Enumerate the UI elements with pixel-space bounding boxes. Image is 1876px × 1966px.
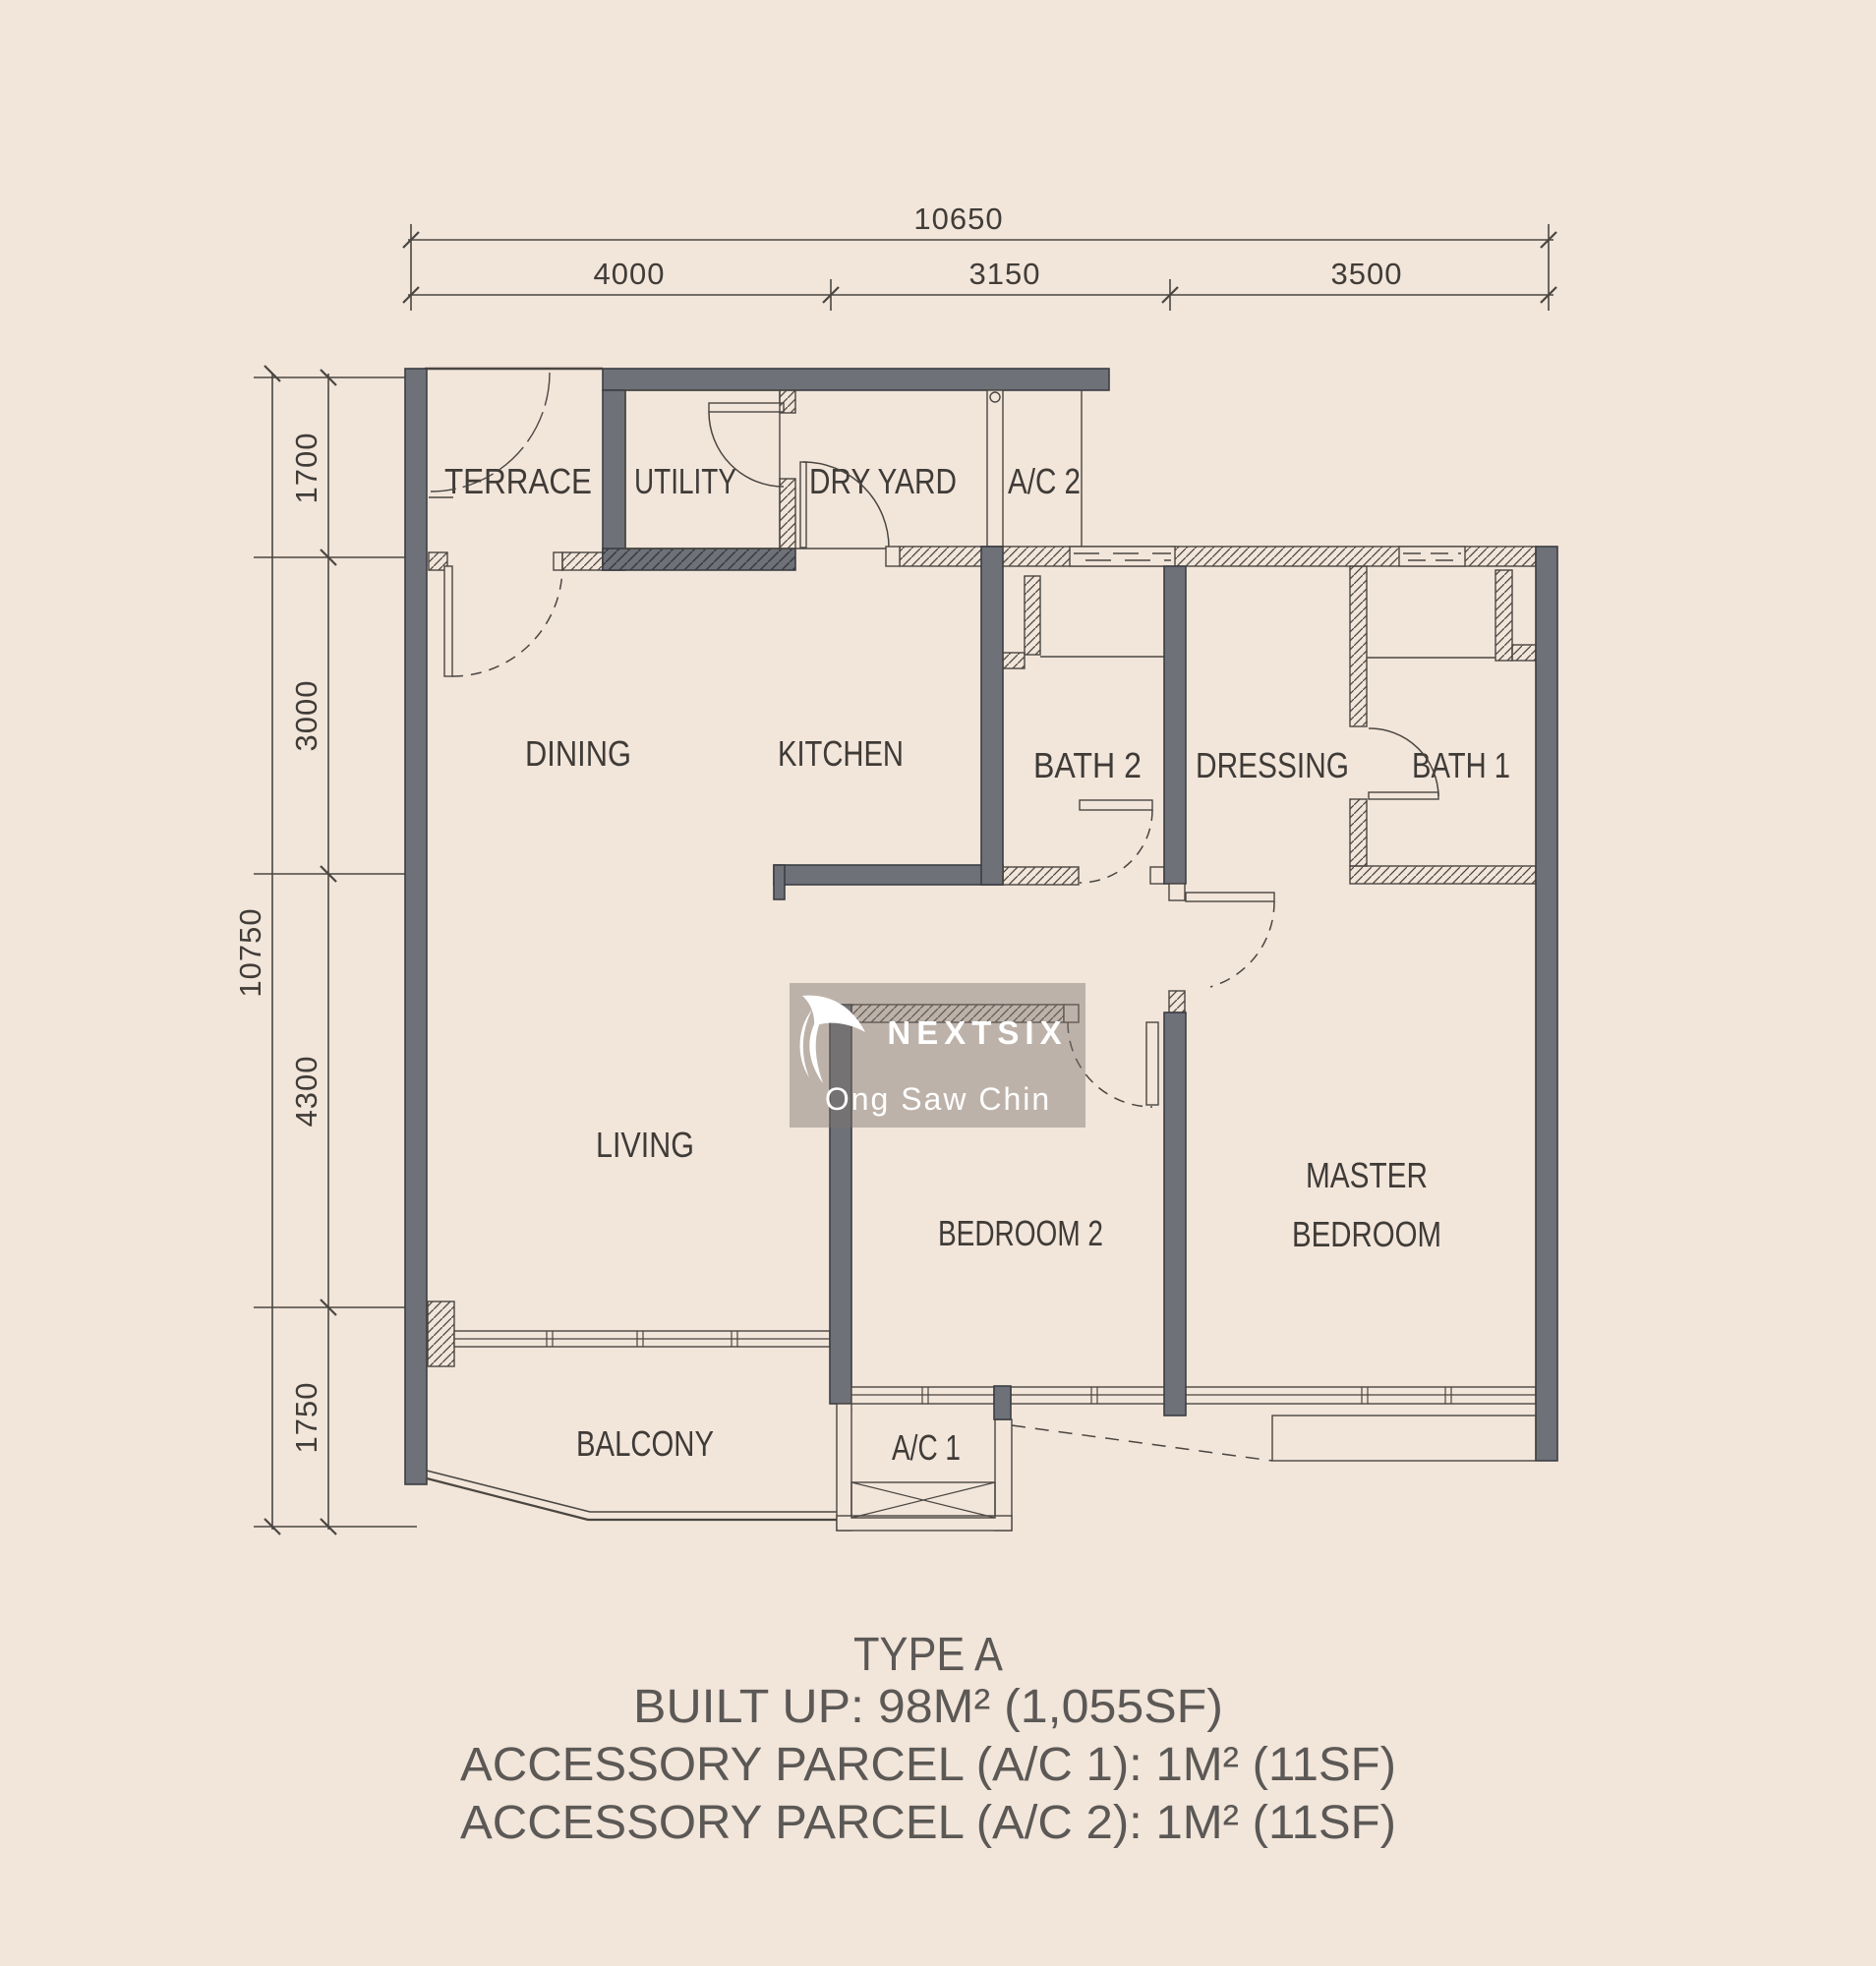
svg-text:4300: 4300 — [289, 1056, 323, 1128]
svg-text:10750: 10750 — [233, 907, 267, 997]
svg-text:BEDROOM 2: BEDROOM 2 — [938, 1213, 1103, 1253]
svg-text:4000: 4000 — [594, 257, 666, 291]
svg-text:3000: 3000 — [289, 680, 323, 752]
svg-text:BUILT UP: 98M² (1,055SF): BUILT UP: 98M² (1,055SF) — [633, 1681, 1223, 1733]
svg-text:1700: 1700 — [289, 433, 323, 504]
svg-text:BATH 2: BATH 2 — [1033, 745, 1142, 785]
svg-text:A/C 1: A/C 1 — [892, 1427, 961, 1468]
svg-text:ACCESSORY PARCEL (A/C 1): 1M²: ACCESSORY PARCEL (A/C 1): 1M² (11SF) — [460, 1739, 1396, 1791]
svg-text:TYPE A: TYPE A — [853, 1629, 1003, 1681]
svg-text:ACCESSORY PARCEL (A/C 2): 1M²: ACCESSORY PARCEL (A/C 2): 1M² (11SF) — [460, 1797, 1396, 1849]
svg-text:UTILITY: UTILITY — [634, 461, 736, 501]
svg-text:MASTER: MASTER — [1306, 1155, 1428, 1195]
svg-text:LIVING: LIVING — [596, 1125, 694, 1165]
svg-text:1750: 1750 — [289, 1382, 323, 1454]
svg-text:KITCHEN: KITCHEN — [778, 733, 904, 774]
svg-text:NEXTSIX: NEXTSIX — [887, 1014, 1067, 1051]
svg-text:DINING: DINING — [525, 733, 631, 774]
svg-text:BEDROOM: BEDROOM — [1292, 1214, 1441, 1254]
svg-text:Ong Saw Chin: Ong Saw Chin — [825, 1081, 1051, 1117]
svg-text:TERRACE: TERRACE — [444, 461, 592, 501]
svg-text:3500: 3500 — [1331, 257, 1403, 291]
svg-text:DRESSING: DRESSING — [1196, 745, 1349, 785]
svg-text:BATH 1: BATH 1 — [1412, 745, 1510, 785]
svg-text:A/C 2: A/C 2 — [1008, 461, 1081, 501]
svg-text:BALCONY: BALCONY — [576, 1423, 714, 1464]
svg-text:3150: 3150 — [969, 257, 1041, 291]
svg-text:10650: 10650 — [913, 202, 1003, 236]
